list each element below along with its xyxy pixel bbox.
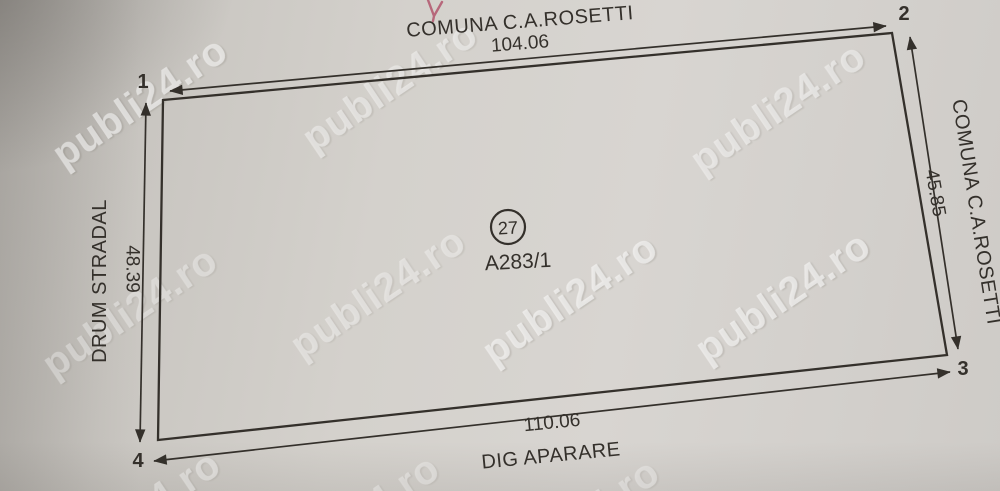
- watermark-text: publi24.ro: [282, 219, 473, 368]
- corner-point-3: 3: [957, 358, 968, 380]
- top-dimension-value: 104.06: [490, 31, 550, 56]
- bottom-boundary-label: DIG APARARE: [480, 438, 621, 473]
- left-boundary-label: DRUM STRADAL: [89, 199, 111, 363]
- watermark-text: publi24.ro: [256, 446, 447, 491]
- watermark-text: publi24.ro: [687, 223, 878, 372]
- right-dimension-value: 45.85: [921, 168, 950, 218]
- parcel-code: A283/1: [484, 249, 552, 275]
- corner-point-1: 1: [137, 71, 148, 93]
- watermark-text: publi24.ro: [682, 34, 873, 183]
- bottom-dimension-value: 110.06: [523, 410, 581, 436]
- watermark-text: publi24.ro: [474, 225, 665, 374]
- cadastral-plan-photo: publi24.ro publi24.ro publi24.ro publi24…: [0, 0, 1000, 491]
- corner-point-4: 4: [132, 450, 144, 472]
- left-dimension-value: 48.39: [122, 245, 143, 293]
- parcel-circle-number: 27: [497, 217, 518, 238]
- parcel-number-badge: 27: [491, 210, 525, 244]
- watermark-text: publi24.ro: [44, 28, 235, 177]
- cadastral-plan-drawing: publi24.ro publi24.ro publi24.ro publi24…: [0, 0, 1000, 491]
- right-boundary-label: COMUNA C.A.ROSETTI: [947, 98, 1000, 327]
- corner-point-2: 2: [898, 3, 909, 25]
